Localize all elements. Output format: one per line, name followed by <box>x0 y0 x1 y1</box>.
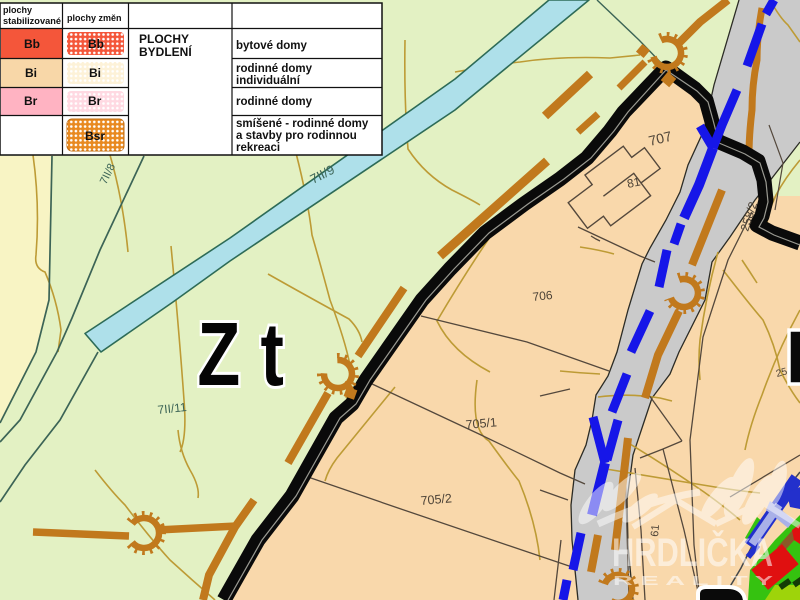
svg-text:Bb: Bb <box>88 37 104 51</box>
svg-text:Bsr: Bsr <box>85 129 105 143</box>
svg-text:rodinné domy: rodinné domy <box>236 63 313 75</box>
svg-text:PLOCHY: PLOCHY <box>139 32 189 46</box>
svg-text:Zt: Zt <box>197 305 304 405</box>
svg-text:smíšené - rodinné domy: smíšené - rodinné domy <box>236 118 369 130</box>
svg-text:706: 706 <box>532 288 554 304</box>
svg-text:rekreaci: rekreaci <box>236 142 280 154</box>
svg-text:a stavby pro rodinnou: a stavby pro rodinnou <box>236 130 357 142</box>
svg-text:rodinné domy: rodinné domy <box>236 96 313 108</box>
svg-text:R E A L I T Y: R E A L I T Y <box>613 574 774 588</box>
svg-text:plochy: plochy <box>3 5 32 15</box>
svg-text:plochy změn: plochy změn <box>67 13 122 23</box>
svg-text:BYDLENÍ: BYDLENÍ <box>139 44 192 59</box>
svg-text:bytové domy: bytové domy <box>236 40 308 52</box>
svg-text:Bb: Bb <box>24 37 40 51</box>
svg-text:stabilizované: stabilizované <box>3 16 61 26</box>
svg-text:individuální: individuální <box>236 75 301 87</box>
svg-text:Bi: Bi <box>25 66 37 80</box>
svg-text:HRDLIČKA: HRDLIČKA <box>612 529 773 575</box>
svg-text:Br: Br <box>24 94 38 108</box>
svg-text:705/2: 705/2 <box>420 491 452 508</box>
svg-text:Br: Br <box>88 94 102 108</box>
svg-text:705/1: 705/1 <box>465 415 497 432</box>
svg-text:Bi: Bi <box>89 66 101 80</box>
